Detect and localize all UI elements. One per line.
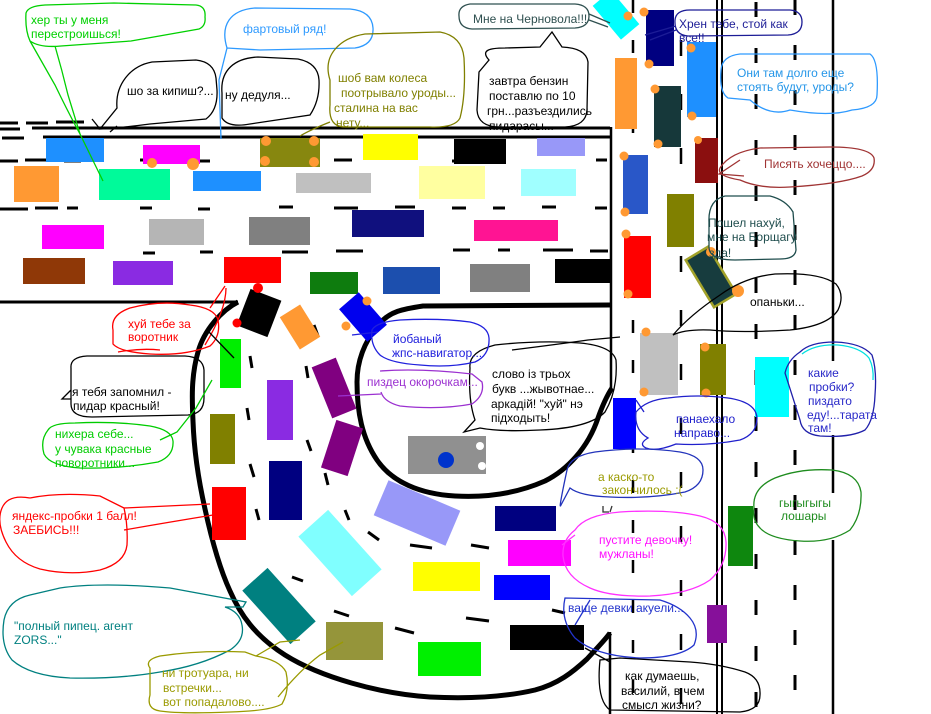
svg-text:аркадій! "хуй" нэ: аркадій! "хуй" нэ (491, 397, 583, 411)
svg-text:хуй тебе за: хуй тебе за (128, 317, 191, 331)
svg-text:поставлю по 10: поставлю по 10 (489, 89, 576, 103)
svg-text:Писять хочеццо....: Писять хочеццо.... (764, 157, 866, 171)
svg-text:пиздец окорочкам...: пиздец окорочкам... (367, 375, 478, 389)
svg-text:поотрывало уроды...: поотрывало уроды... (341, 86, 456, 100)
svg-text:завтра бензин: завтра бензин (489, 74, 568, 88)
svg-text:смысл жизни?: смысл жизни? (622, 698, 702, 712)
svg-text:фартовый ряд!: фартовый ряд! (243, 22, 326, 36)
svg-text:еду!...тарата: еду!...тарата (807, 408, 877, 422)
svg-text:підходыть!: підходыть! (491, 411, 550, 425)
svg-text:гыгыгыгы: гыгыгыгы (779, 496, 831, 510)
svg-text:вот попадалово....: вот попадалово.... (163, 695, 265, 709)
svg-text:панаехало: панаехало (676, 412, 736, 426)
svg-text:нету...: нету... (336, 116, 369, 130)
svg-text:пиздато: пиздато (808, 394, 852, 408)
svg-text:там!: там! (808, 421, 832, 435)
svg-text:пидар красный!: пидар красный! (73, 399, 160, 413)
svg-text:как думаешь,: как думаешь, (625, 669, 699, 683)
svg-text:зда!: зда! (709, 246, 731, 260)
svg-text:шоб вам колеса: шоб вам колеса (338, 71, 427, 85)
svg-text:встречки...: встречки... (163, 681, 222, 695)
svg-text:я тебя запомнил -: я тебя запомнил - (72, 385, 171, 399)
svg-text:а каско-то: а каско-то (598, 470, 655, 484)
svg-text:"полный пипец. агент: "полный пипец. агент (14, 619, 133, 633)
svg-text:пустите девочку!: пустите девочку! (599, 533, 692, 547)
svg-text:какие: какие (808, 366, 839, 380)
svg-text:Мне на Черновола!!!: Мне на Черновола!!! (473, 12, 587, 26)
svg-text:шо за кипиш?...: шо за кипиш?... (127, 84, 214, 98)
svg-text:ни тротуара, ни: ни тротуара, ни (162, 666, 249, 680)
svg-text:йобаный: йобаный (393, 332, 442, 346)
svg-text:пробки?: пробки? (809, 380, 855, 394)
svg-text:сталина на вас: сталина на вас (334, 101, 418, 115)
svg-text:мне на Борщагу: мне на Борщагу (707, 230, 797, 244)
svg-text:Пошел нахуй,: Пошел нахуй, (708, 216, 785, 230)
svg-text:василий, в чем: василий, в чем (621, 684, 705, 698)
svg-text:слово із трьох: слово із трьох (492, 367, 571, 381)
svg-text:направо...: направо... (674, 426, 730, 440)
svg-text:хер ты у меня: хер ты у меня (31, 13, 108, 27)
svg-text:у чувака красные: у чувака красные (55, 442, 152, 456)
svg-text:опаньки...: опаньки... (750, 295, 805, 309)
svg-text:ну дедуля...: ну дедуля... (225, 88, 291, 102)
svg-text:поворотники...: поворотники... (55, 456, 135, 470)
svg-text:букв ...жывотнае...: букв ...жывотнае... (492, 382, 594, 396)
svg-text:ZORS...": ZORS..." (14, 633, 62, 647)
svg-text:ваще девки акуели...: ваще девки акуели... (568, 601, 684, 615)
svg-text:жпс-навигатор...: жпс-навигатор... (392, 346, 482, 360)
svg-text:стоять будут, уроды?: стоять будут, уроды? (737, 80, 854, 94)
svg-text:мужланы!: мужланы! (599, 547, 654, 561)
svg-text:все!!: все!! (679, 31, 705, 45)
svg-text:яндекс-пробки 1 балл!: яндекс-пробки 1 балл! (12, 509, 137, 523)
svg-text:воротник: воротник (128, 330, 179, 344)
svg-text:грн...разъездились: грн...разъездились (487, 104, 592, 118)
svg-text:закончилось :(: закончилось :( (602, 483, 683, 497)
svg-text:перестроишься!: перестроишься! (31, 27, 121, 41)
svg-text:Они там долго еще: Они там долго еще (737, 66, 845, 80)
svg-text:лошары: лошары (781, 509, 826, 523)
svg-text:нихера себе...: нихера себе... (55, 427, 134, 441)
svg-text:Хрен тебе, стой как: Хрен тебе, стой как (679, 17, 789, 31)
svg-text:пидарасы...: пидарасы... (489, 119, 554, 133)
svg-text:ЗАЕБИСЬ!!!: ЗАЕБИСЬ!!! (13, 523, 79, 537)
